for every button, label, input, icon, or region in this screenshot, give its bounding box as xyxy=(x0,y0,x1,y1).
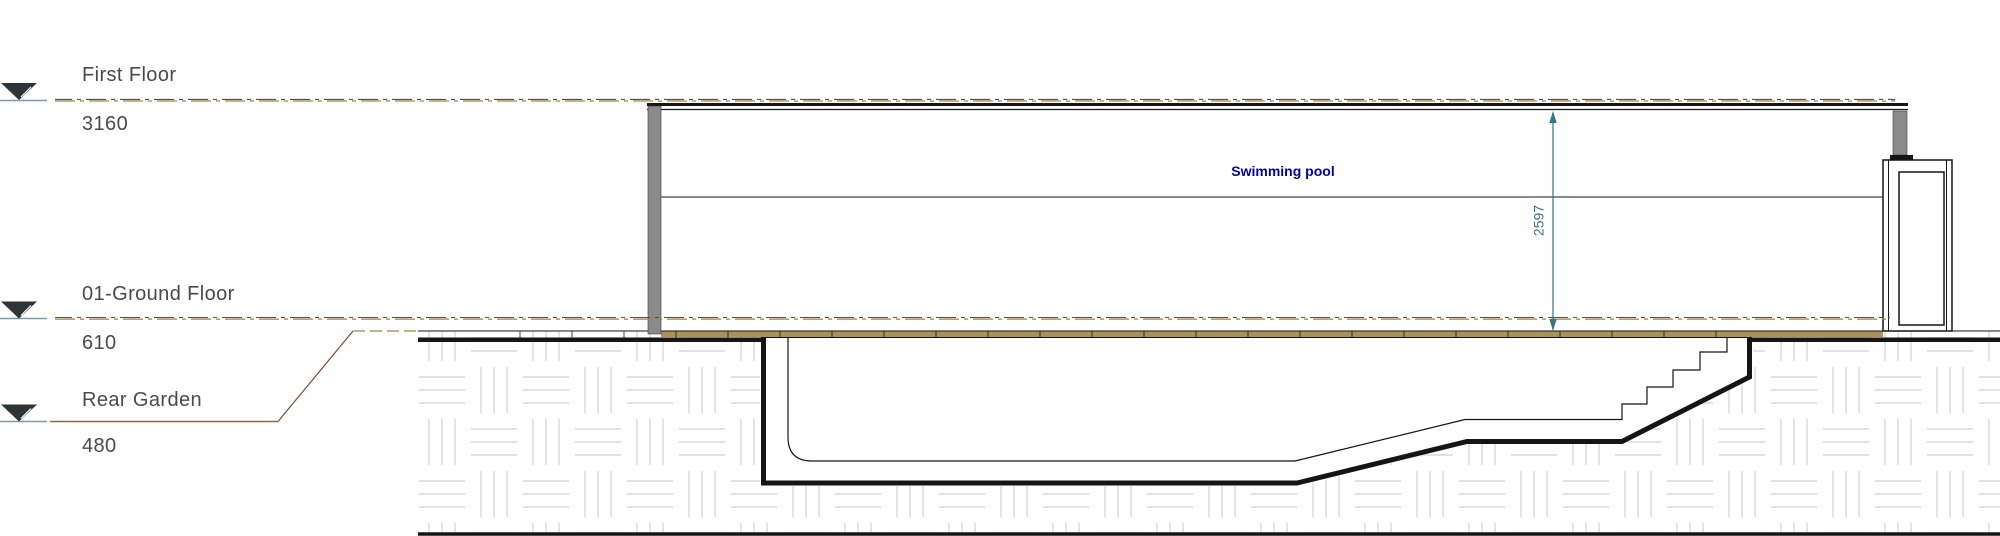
first-floor-marker-icon xyxy=(1,83,37,100)
right-door xyxy=(1883,160,1952,331)
rear-garden-leader xyxy=(278,331,353,422)
ground-floor-marker-icon xyxy=(1,302,37,319)
room-label: Swimming pool xyxy=(1208,163,1358,179)
building xyxy=(647,105,1952,335)
dimension-arrow-up-icon xyxy=(1549,111,1556,123)
left-wall-cut xyxy=(648,106,661,334)
rear-garden-label: Rear Garden xyxy=(82,389,202,412)
dimension-arrow-down-icon xyxy=(1549,319,1556,331)
height-dimension xyxy=(1549,111,1556,331)
deck-timber-band xyxy=(661,332,1883,338)
rear-garden-marker-icon xyxy=(1,405,37,422)
ground-floor-value: 610 xyxy=(82,332,117,355)
door-panel xyxy=(1899,172,1944,325)
rear-garden-value: 480 xyxy=(82,435,117,458)
first-floor-label: First Floor xyxy=(82,64,176,87)
right-wall-cut xyxy=(1893,111,1907,155)
first-floor-value: 3160 xyxy=(82,113,128,136)
dimension-value: 2597 xyxy=(1531,196,1548,246)
section-drawing-canvas xyxy=(0,0,2000,536)
section-drawing: First Floor 3160 01-Ground Floor 610 Rea… xyxy=(0,0,2000,536)
ground-floor-label: 01-Ground Floor xyxy=(82,283,235,306)
level-markers xyxy=(0,83,47,422)
